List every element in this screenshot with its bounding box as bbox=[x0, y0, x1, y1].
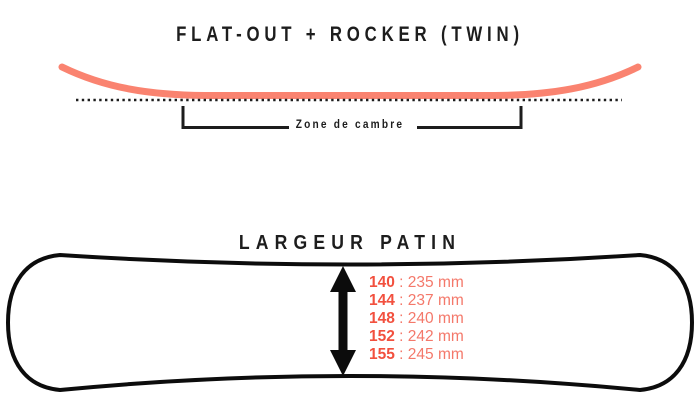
board-size: 155 bbox=[369, 346, 395, 363]
waist-width: 235 mm bbox=[408, 274, 464, 291]
separator: : bbox=[395, 328, 408, 345]
separator: : bbox=[395, 292, 408, 309]
waist-width: 237 mm bbox=[408, 292, 464, 309]
measurement-row: 152 : 242 mm bbox=[369, 328, 464, 346]
board-top-outline bbox=[8, 255, 692, 390]
separator: : bbox=[395, 310, 408, 327]
waist-width: 242 mm bbox=[408, 328, 464, 345]
camber-zone-label: Zone de cambre bbox=[42, 119, 658, 131]
board-size: 140 bbox=[369, 274, 395, 291]
width-title: LARGEUR PATIN bbox=[42, 232, 658, 255]
separator: : bbox=[395, 346, 408, 363]
board-size: 144 bbox=[369, 292, 395, 309]
board-size: 148 bbox=[369, 310, 395, 327]
waist-width: 240 mm bbox=[408, 310, 464, 327]
snowboard-spec-diagram: FLAT-OUT + ROCKER (TWIN) Zone de cambre … bbox=[0, 0, 700, 400]
profile-title: FLAT-OUT + ROCKER (TWIN) bbox=[70, 23, 630, 47]
measurement-row: 148 : 240 mm bbox=[369, 310, 464, 328]
width-measurements: 140 : 235 mm 144 : 237 mm 148 : 240 mm 1… bbox=[369, 274, 464, 364]
measurement-row: 155 : 245 mm bbox=[369, 346, 464, 364]
waist-width: 245 mm bbox=[408, 346, 464, 363]
measurement-row: 140 : 235 mm bbox=[369, 274, 464, 292]
rocker-profile-curve bbox=[62, 67, 638, 96]
diagram-shapes bbox=[0, 0, 700, 400]
separator: : bbox=[395, 274, 408, 291]
board-size: 152 bbox=[369, 328, 395, 345]
measurement-row: 144 : 237 mm bbox=[369, 292, 464, 310]
